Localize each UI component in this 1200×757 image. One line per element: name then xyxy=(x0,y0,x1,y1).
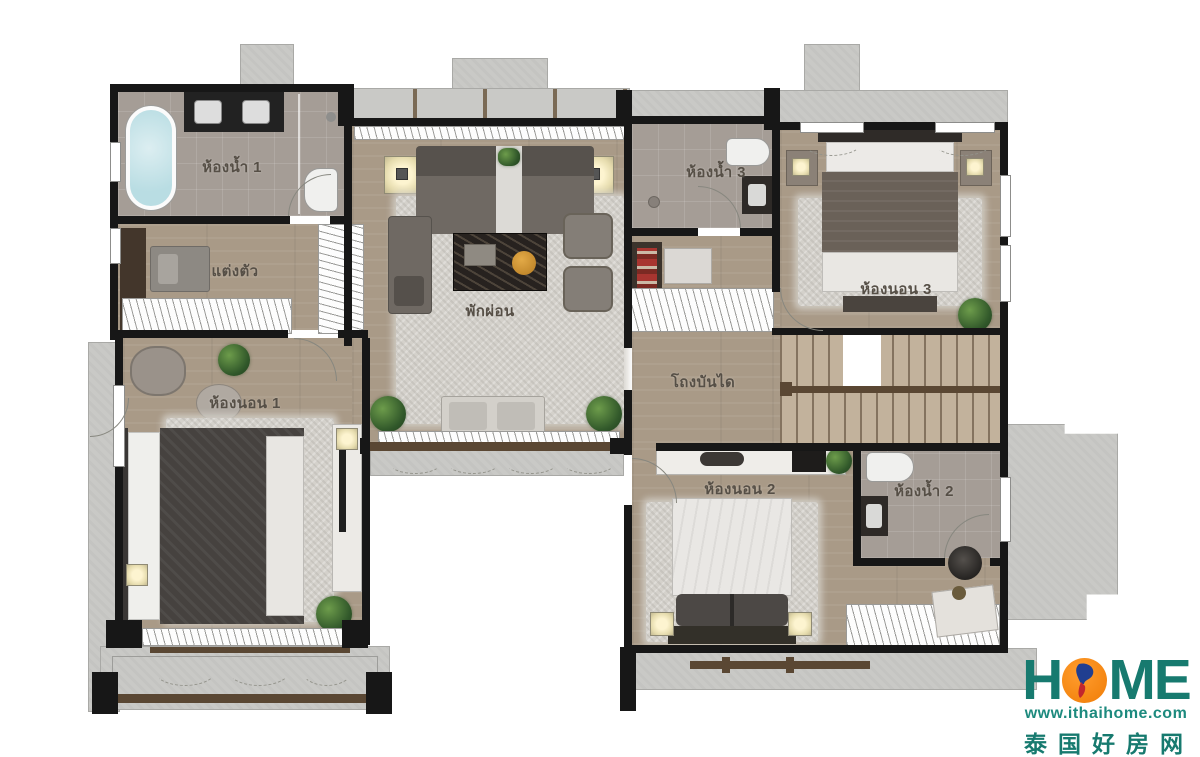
bench-cushion-1 xyxy=(449,402,487,430)
wardrobe-dressing-right xyxy=(318,224,364,334)
wardrobe-hall xyxy=(630,288,774,332)
bathtub xyxy=(126,106,176,210)
fold-arc xyxy=(562,450,616,474)
window xyxy=(1000,245,1011,302)
wall xyxy=(360,438,370,454)
sink-left xyxy=(194,100,222,124)
concrete-tab-top-center xyxy=(452,58,548,92)
lamp-bed2-left xyxy=(650,612,674,636)
wall xyxy=(856,443,1008,451)
wall xyxy=(352,118,630,126)
room-label-bedroom2: ห้องนอน 2 xyxy=(704,477,775,501)
ledge-right-post-1 xyxy=(722,657,730,673)
wall xyxy=(338,330,368,338)
wall xyxy=(853,443,861,565)
wall xyxy=(624,92,632,348)
sink-bath2-basin xyxy=(866,504,882,528)
sink-right xyxy=(242,100,270,124)
balcony-left-railing xyxy=(104,694,386,703)
wall xyxy=(110,216,290,224)
coffee-table-books xyxy=(464,244,496,266)
bed2-headboard xyxy=(668,626,796,644)
stair-void xyxy=(843,335,881,387)
fold-arc xyxy=(446,450,500,474)
thailand-map-icon xyxy=(1062,658,1107,703)
stair-rail-post xyxy=(780,382,792,396)
thailand-map-shape xyxy=(1071,663,1097,699)
bed1-pillows xyxy=(128,432,160,620)
site-watermark: H ME www.ithaihome.com 泰国好房网 xyxy=(1012,656,1200,757)
ledge-right-railing xyxy=(690,661,870,669)
dresser-items xyxy=(792,448,826,472)
shower-head xyxy=(326,112,336,122)
lamp-bed3-left xyxy=(792,158,810,176)
lamp-bed2-right xyxy=(788,612,812,636)
room-label-bathroom2: ห้องน้ำ 2 xyxy=(894,479,954,503)
fold-arc xyxy=(152,650,218,686)
brand-letter-h: H xyxy=(1022,656,1061,704)
tv-bedroom1 xyxy=(339,448,346,532)
wall xyxy=(115,465,123,625)
dressing-bench-cushion xyxy=(158,254,178,284)
wall xyxy=(656,443,856,451)
wall xyxy=(610,438,632,454)
bed1-foot-fold xyxy=(266,436,304,616)
wall xyxy=(1000,540,1008,653)
fold-arc xyxy=(388,450,442,474)
plant-living-right xyxy=(586,396,622,432)
lamp-bed3-right xyxy=(966,158,984,176)
window xyxy=(800,122,864,133)
bench-cushion-2 xyxy=(497,402,535,430)
fold-arc xyxy=(226,650,292,686)
room-label-living: พักผ่อน xyxy=(465,299,514,323)
bed3-body xyxy=(822,172,958,252)
lamp-living-left-core xyxy=(396,168,408,180)
wall xyxy=(366,672,392,714)
armchair-living-2 xyxy=(563,266,613,312)
wall xyxy=(632,228,698,236)
armchair-living-1 xyxy=(563,213,613,259)
room-label-stair-hall: โถงบันได xyxy=(671,370,735,394)
wall xyxy=(772,122,780,292)
wall xyxy=(362,338,370,645)
wall xyxy=(632,116,780,124)
ledge-bottom-right xyxy=(622,648,1037,690)
wall xyxy=(118,330,288,338)
brand-letters-me: ME xyxy=(1108,656,1190,704)
sink-bath3-basin xyxy=(748,184,766,206)
wall xyxy=(620,647,636,711)
fold-arc xyxy=(504,450,558,474)
chaise-cushion xyxy=(394,276,424,306)
wall xyxy=(1000,447,1008,477)
wall xyxy=(853,558,945,566)
fold-door-bedroom1 xyxy=(142,628,344,646)
fold-arc xyxy=(300,650,354,686)
plant-bedroom3 xyxy=(958,298,992,332)
lamp-bedroom1-left xyxy=(126,564,148,586)
wall xyxy=(862,122,935,130)
plant-dresser xyxy=(826,448,852,474)
toilet-bath2 xyxy=(866,452,914,482)
plant-living-left xyxy=(370,396,406,432)
wall xyxy=(92,672,118,714)
stair-railing xyxy=(780,386,1000,393)
wall xyxy=(624,505,632,653)
dresser-tray xyxy=(700,452,744,466)
concrete-tab-top-right xyxy=(804,44,860,94)
window xyxy=(935,122,995,133)
plant-on-sofa xyxy=(498,148,520,166)
bench-hall xyxy=(664,248,712,284)
gold-tray xyxy=(512,251,536,275)
lamp-bedroom1-right xyxy=(336,428,358,450)
wall xyxy=(1000,335,1008,447)
room-label-bathroom3: ห้องน้ำ 3 xyxy=(686,160,746,184)
wall xyxy=(772,328,1008,335)
brand-url: www.ithaihome.com xyxy=(1012,705,1200,723)
desk-items xyxy=(952,586,966,600)
wall xyxy=(740,228,774,236)
terrace-right xyxy=(1002,424,1118,620)
window xyxy=(1000,477,1011,542)
brand-chinese-name: 泰国好房网 xyxy=(1012,725,1200,757)
shower-drain-bath3 xyxy=(648,196,660,208)
wall xyxy=(106,620,142,648)
window xyxy=(1000,175,1011,237)
ledge-right-post-2 xyxy=(786,657,794,673)
floor-plan: ห้องน้ำ 1 แต่งตัว ห้องนอน 1 พักผ่อน ห้อง… xyxy=(0,0,1200,757)
wall xyxy=(110,84,118,340)
bed2-duvet xyxy=(672,498,792,596)
plant-bedroom1-top xyxy=(218,344,250,376)
bed2-pillow-split xyxy=(730,594,734,626)
window xyxy=(110,228,121,264)
wall xyxy=(1000,122,1008,175)
brand-logo: H ME xyxy=(1012,656,1200,704)
wall xyxy=(624,390,632,445)
wall xyxy=(115,338,123,385)
window xyxy=(110,142,121,182)
room-label-bedroom1: ห้องนอน 1 xyxy=(209,391,280,415)
wall xyxy=(624,645,1008,653)
room-label-bathroom1: ห้องน้ำ 1 xyxy=(202,155,262,179)
wall xyxy=(342,620,368,648)
wardrobe-dressing-bottom xyxy=(122,298,292,334)
room-label-dressing: แต่งตัว xyxy=(212,259,259,283)
wall xyxy=(110,84,352,92)
sill-living-top xyxy=(354,126,626,140)
room-label-bedroom3: ห้องนอน 3 xyxy=(860,277,931,301)
armchair-bedroom1 xyxy=(130,346,186,396)
